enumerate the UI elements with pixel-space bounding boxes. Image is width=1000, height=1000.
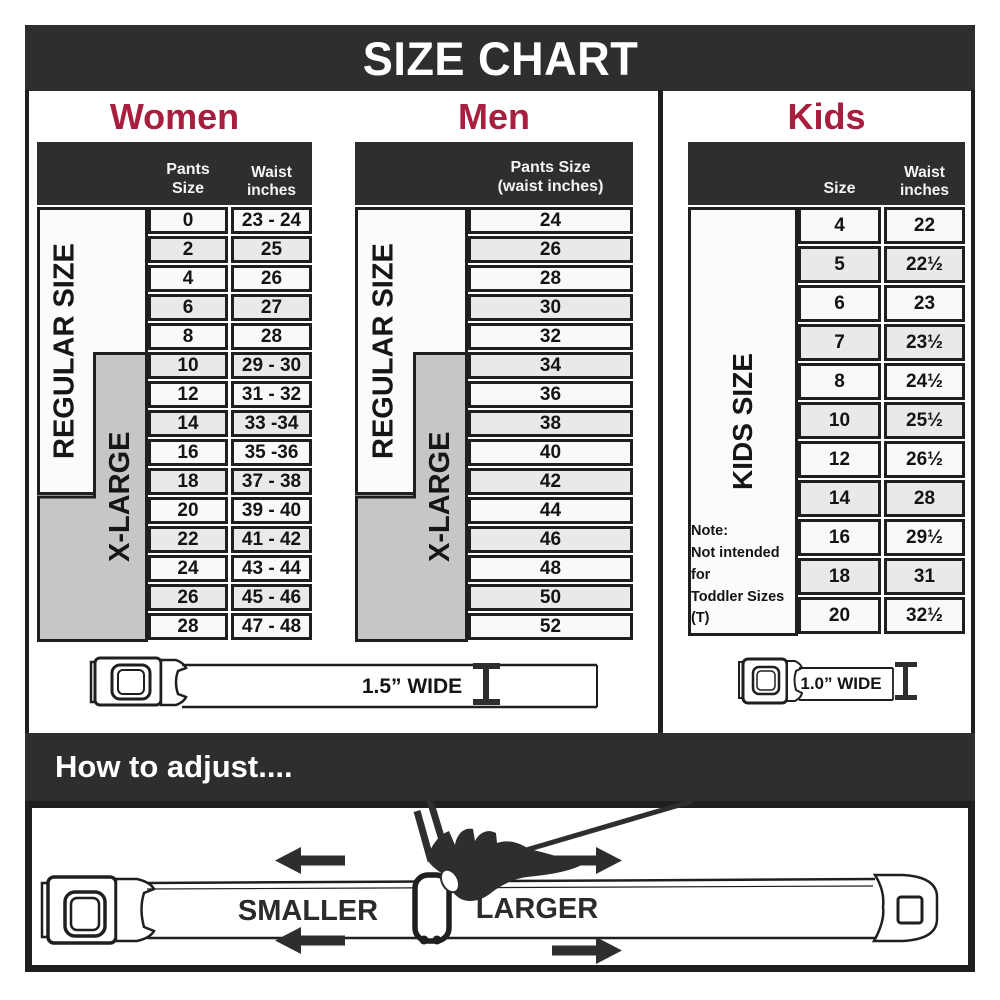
size-value-cell: 25 [231, 236, 312, 263]
table-row: 623 [798, 285, 965, 324]
table-row: 42 [468, 468, 633, 497]
size-value-cell: 16 [798, 519, 881, 556]
table-row: 2847 - 48 [148, 613, 312, 642]
table-row: 44 [468, 497, 633, 526]
table-row: 30 [468, 294, 633, 323]
size-value-cell: 5 [798, 246, 881, 283]
table-row: 723½ [798, 324, 965, 363]
size-value-cell: 52 [468, 613, 633, 640]
table-row: 627 [148, 294, 312, 323]
size-value-cell: 29 - 30 [231, 352, 312, 379]
heading-women: Women [37, 94, 312, 140]
kids-section-divider [658, 90, 663, 733]
size-value-cell: 23 - 24 [231, 207, 312, 234]
men-table-rows: 242628303234363840424446485052 [468, 207, 633, 642]
size-value-cell: 24 [148, 555, 228, 582]
seatbelt-buckle-icon [91, 658, 186, 705]
larger-label: LARGER [476, 893, 599, 925]
table-row: 1629½ [798, 519, 965, 558]
size-value-cell: 33 -34 [231, 410, 312, 437]
size-value-cell: 14 [798, 480, 881, 517]
table-row: 522½ [798, 246, 965, 285]
table-row: 1025½ [798, 402, 965, 441]
table-row: 1029 - 30 [148, 352, 312, 381]
women-xlarge-label: X-LARGE [93, 352, 148, 642]
size-value-cell: 12 [798, 441, 881, 478]
size-chart-banner: SIZE CHART [25, 25, 975, 91]
table-row: 26 [468, 236, 633, 265]
size-value-cell: 36 [468, 381, 633, 408]
kids-belt-width-label: 1.0” WIDE [800, 674, 881, 693]
size-value-cell: 30 [468, 294, 633, 321]
heading-men: Men [355, 94, 633, 140]
table-row: 50 [468, 584, 633, 613]
size-value-cell: 40 [468, 439, 633, 466]
size-value-cell: 28 [148, 613, 228, 640]
men-regular-size-label: REGULAR SIZE [355, 207, 413, 495]
size-value-cell: 22 [148, 526, 228, 553]
size-value-cell: 28 [884, 480, 965, 517]
size-value-cell: 34 [468, 352, 633, 379]
size-value-cell: 18 [148, 468, 228, 495]
size-value-cell: 25½ [884, 402, 965, 439]
table-row: 2032½ [798, 597, 965, 636]
table-row: 2039 - 40 [148, 497, 312, 526]
table-row: 1428 [798, 480, 965, 519]
size-value-cell: 14 [148, 410, 228, 437]
women-table-header: Pants Size Waist inches [37, 142, 312, 205]
size-value-cell: 4 [798, 207, 881, 244]
seatbelt-buckle-icon [42, 877, 154, 943]
men-size-table: Pants Size (waist inches) REGULAR SIZE X… [355, 142, 633, 642]
size-value-cell: 44 [468, 497, 633, 524]
kids-size-table: Size Waist inches KIDS SIZE Note: Not in… [688, 142, 965, 636]
size-chart-page: SIZE CHART Women Men Kids Pants Size Wai… [0, 0, 1000, 1000]
size-value-cell: 26½ [884, 441, 965, 478]
size-value-cell: 29½ [884, 519, 965, 556]
table-row: 36 [468, 381, 633, 410]
women-table-rows: 023 - 242254266278281029 - 301231 - 3214… [148, 207, 312, 642]
size-value-cell: 35 -36 [231, 439, 312, 466]
men-table-header: Pants Size (waist inches) [355, 142, 633, 205]
table-row: 32 [468, 323, 633, 352]
table-row: 28 [468, 265, 633, 294]
size-value-cell: 28 [468, 265, 633, 292]
table-row: 40 [468, 439, 633, 468]
women-regular-size-label: REGULAR SIZE [37, 207, 93, 495]
adult-belt-width-label: 1.5” WIDE [362, 675, 462, 698]
table-row: 38 [468, 410, 633, 439]
table-row: 1226½ [798, 441, 965, 480]
table-row: 2443 - 44 [148, 555, 312, 584]
table-row: 48 [468, 555, 633, 584]
men-table-body: REGULAR SIZE X-LARGE 2426283032343638404… [355, 207, 633, 642]
kids-table-rows: 422522½623723½824½1025½1226½14281629½183… [798, 207, 965, 636]
size-value-cell: 0 [148, 207, 228, 234]
kids-belt-illustration: 1.0” WIDE [735, 656, 935, 706]
size-value-cell: 46 [468, 526, 633, 553]
table-row: 1231 - 32 [148, 381, 312, 410]
table-row: 2241 - 42 [148, 526, 312, 555]
size-value-cell: 31 - 32 [231, 381, 312, 408]
how-to-adjust-heading: How to adjust.... [25, 749, 293, 785]
kids-table-header: Size Waist inches [688, 142, 965, 205]
kids-col-header-waist-inches: Waist inches [884, 164, 965, 200]
page-title: SIZE CHART [362, 31, 638, 86]
men-xlarge-label: X-LARGE [413, 352, 468, 642]
size-value-cell: 22 [884, 207, 965, 244]
size-value-cell: 37 - 38 [231, 468, 312, 495]
width-measure-icon [473, 663, 500, 705]
table-row: 1837 - 38 [148, 468, 312, 497]
size-value-cell: 50 [468, 584, 633, 611]
table-row: 1433 -34 [148, 410, 312, 439]
men-col-header-pants-size: Pants Size (waist inches) [468, 159, 633, 196]
adult-belt-illustration: 1.5” WIDE [88, 650, 603, 712]
size-value-cell: 26 [148, 584, 228, 611]
size-value-cell: 26 [468, 236, 633, 263]
adjust-illustration: SMALLER LARGER [25, 801, 975, 972]
kids-table-body: KIDS SIZE Note: Not intended for Toddler… [688, 207, 965, 636]
size-value-cell: 45 - 46 [231, 584, 312, 611]
size-value-cell: 8 [148, 323, 228, 350]
kids-col-header-size: Size [798, 180, 881, 198]
size-value-cell: 43 - 44 [231, 555, 312, 582]
table-row: 422 [798, 207, 965, 246]
size-value-cell: 18 [798, 558, 881, 595]
heading-kids: Kids [688, 94, 965, 140]
women-col-header-waist-inches: Waist inches [231, 164, 312, 200]
size-value-cell: 31 [884, 558, 965, 595]
women-col-header-pants-size: Pants Size [148, 161, 228, 198]
size-value-cell: 27 [231, 294, 312, 321]
size-value-cell: 10 [148, 352, 228, 379]
size-value-cell: 26 [231, 265, 312, 292]
belt-tip [874, 875, 937, 941]
size-value-cell: 2 [148, 236, 228, 263]
size-value-cell: 23½ [884, 324, 965, 361]
size-value-cell: 24½ [884, 363, 965, 400]
women-table-body: REGULAR SIZE X-LARGE 023 - 2422542662782… [37, 207, 312, 642]
size-value-cell: 24 [468, 207, 633, 234]
size-value-cell: 42 [468, 468, 633, 495]
how-to-adjust-banner: How to adjust.... [25, 733, 975, 801]
size-value-cell: 48 [468, 555, 633, 582]
table-row: 225 [148, 236, 312, 265]
seatbelt-buckle-icon [739, 659, 802, 703]
smaller-label: SMALLER [238, 895, 378, 927]
size-value-cell: 10 [798, 402, 881, 439]
table-row: 34 [468, 352, 633, 381]
size-value-cell: 8 [798, 363, 881, 400]
size-value-cell: 39 - 40 [231, 497, 312, 524]
table-row: 824½ [798, 363, 965, 402]
women-size-table: Pants Size Waist inches REGULAR SIZE X-L… [37, 142, 312, 642]
size-value-cell: 6 [798, 285, 881, 322]
size-value-cell: 20 [798, 597, 881, 634]
size-value-cell: 32 [468, 323, 633, 350]
size-value-cell: 6 [148, 294, 228, 321]
size-value-cell: 7 [798, 324, 881, 361]
table-row: 1635 -36 [148, 439, 312, 468]
frame-left-border [25, 90, 29, 733]
table-row: 24 [468, 207, 633, 236]
size-value-cell: 20 [148, 497, 228, 524]
size-value-cell: 12 [148, 381, 228, 408]
size-value-cell: 32½ [884, 597, 965, 634]
size-value-cell: 23 [884, 285, 965, 322]
table-row: 426 [148, 265, 312, 294]
size-value-cell: 28 [231, 323, 312, 350]
table-row: 1831 [798, 558, 965, 597]
kids-toddler-note: Note: Not intended for Toddler Sizes (T) [691, 521, 797, 630]
size-value-cell: 38 [468, 410, 633, 437]
size-value-cell: 4 [148, 265, 228, 292]
table-row: 2645 - 46 [148, 584, 312, 613]
size-value-cell: 22½ [884, 246, 965, 283]
width-measure-icon [895, 662, 917, 700]
size-value-cell: 47 - 48 [231, 613, 312, 640]
size-value-cell: 16 [148, 439, 228, 466]
table-row: 46 [468, 526, 633, 555]
size-value-cell: 41 - 42 [231, 526, 312, 553]
table-row: 023 - 24 [148, 207, 312, 236]
table-row: 828 [148, 323, 312, 352]
frame-right-border [971, 90, 975, 733]
table-row: 52 [468, 613, 633, 642]
